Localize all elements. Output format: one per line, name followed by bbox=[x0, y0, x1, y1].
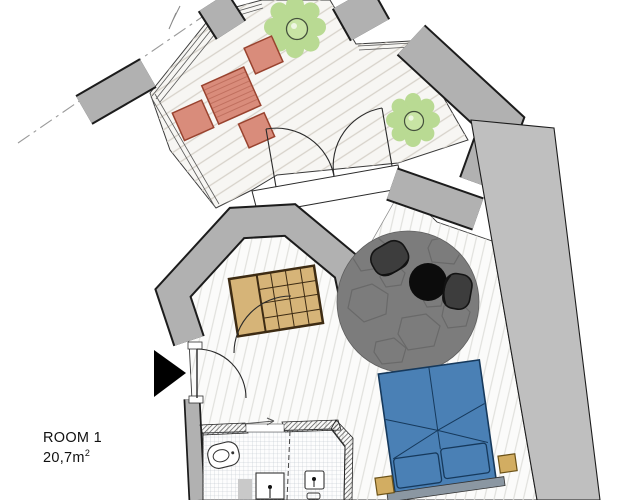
wall-segment bbox=[352, 0, 370, 30]
sink-icon bbox=[256, 473, 284, 499]
bathroom bbox=[200, 418, 353, 500]
nightstand bbox=[498, 454, 517, 473]
pillow bbox=[393, 453, 442, 489]
side-table bbox=[409, 263, 447, 301]
room-label: ROOM 1 20,7m2 bbox=[43, 429, 102, 468]
wall-segment bbox=[213, 2, 231, 30]
wardrobe bbox=[229, 266, 323, 337]
floor-plan-svg bbox=[0, 0, 636, 500]
bathroom-wall bbox=[200, 423, 248, 435]
plant-icon bbox=[386, 93, 440, 147]
nightstand bbox=[375, 476, 394, 495]
room-area: 20,7m2 bbox=[43, 448, 102, 468]
floor-plan: ROOM 1 20,7m2 bbox=[0, 0, 636, 500]
bathroom-threshold bbox=[246, 424, 284, 432]
shower-mat bbox=[238, 479, 252, 499]
pillow bbox=[440, 443, 490, 479]
wall-segment bbox=[192, 399, 197, 500]
room-name: ROOM 1 bbox=[43, 429, 102, 448]
